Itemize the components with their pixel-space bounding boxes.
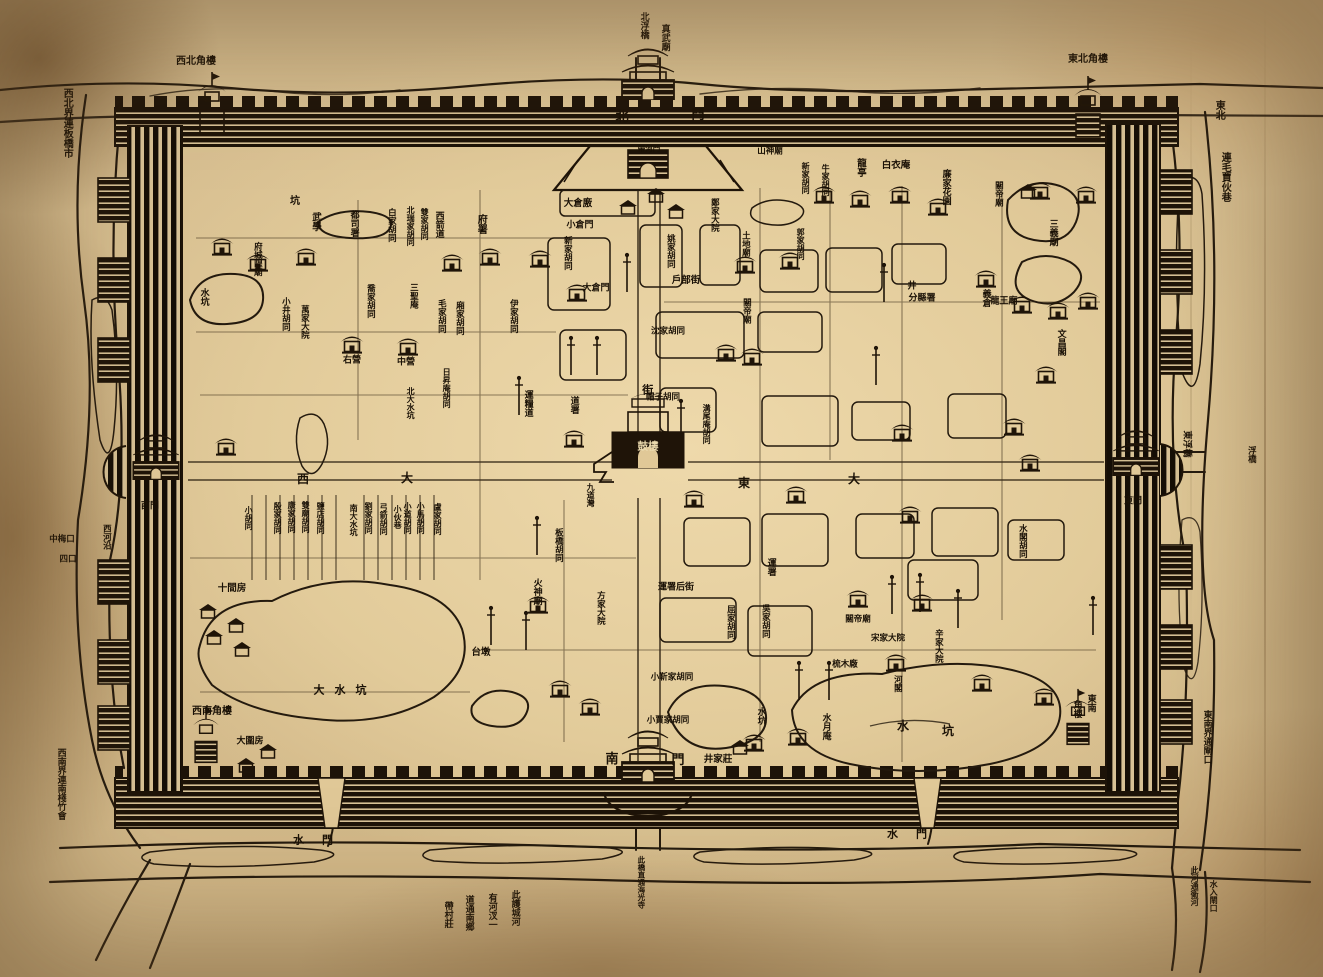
map-label: 大	[848, 473, 860, 485]
map-label: 浮橋	[1247, 446, 1256, 463]
map-label: 雙家胡同	[420, 208, 428, 240]
map-label: 鹽店胡同	[316, 502, 324, 534]
map-label: 新家胡同	[563, 236, 572, 270]
map-label: 喬家胡同	[366, 284, 375, 318]
map-label: 萬家大院	[300, 305, 309, 339]
map-label: 白衣庵	[882, 161, 911, 171]
map-label: 西南界連南棧竹會	[55, 748, 64, 820]
map-label: 關帝廟	[845, 616, 871, 625]
map-label: 大倉廒	[564, 199, 593, 209]
map-label: 帶河門	[638, 145, 661, 153]
map-label: 弓箭胡同	[379, 503, 387, 535]
map-label: 府城隍廟	[253, 242, 262, 276]
map-label: 文昌閣	[1055, 329, 1064, 356]
map-label: 大圍房	[236, 737, 263, 746]
map-label: 小胡同	[244, 506, 252, 530]
map-canvas: 真武廟北浮橋西北角樓東北角樓西南角樓東南角樓西北界連板橋市東北連毛賈伙巷西南界連…	[0, 0, 1323, 977]
map-label: 井家莊	[704, 755, 733, 765]
map-label: 角樓	[1071, 700, 1080, 718]
map-label: 康家胡同	[287, 501, 295, 533]
map-label: 水入閘口	[1209, 880, 1217, 912]
map-label: 小倉門	[566, 221, 593, 230]
map-label: 連毛賈伙巷	[1219, 152, 1229, 202]
map-label: 板橋胡同	[554, 528, 563, 562]
map-label: 宋家大院	[871, 635, 905, 644]
map-label: 大	[401, 472, 413, 484]
south-gate-label: 南	[605, 753, 618, 767]
map-label: 東浮橋	[1181, 430, 1190, 457]
map-label: 姚家胡同	[666, 234, 675, 268]
map-label: 道署	[568, 396, 577, 414]
map-label: 北瑞家胡同	[406, 206, 414, 246]
map-label: 白家胡同	[387, 208, 396, 242]
map-label: 台墩	[471, 648, 490, 658]
map-label: 運糧道	[522, 390, 531, 417]
map-label: 此橋直通海光寺	[637, 856, 645, 909]
map-label: 溝尾庵胡同	[702, 404, 710, 444]
map-label: 府署	[475, 214, 485, 234]
map-label: 小道胡同	[403, 502, 411, 534]
map-label: 殷家胡同	[273, 502, 281, 534]
map-label: 坑	[942, 725, 954, 737]
map-label: 火神廟	[531, 578, 540, 605]
map-label: 三義廟	[1047, 219, 1056, 246]
map-label: 此河通衛河	[1190, 866, 1198, 906]
map-label: 小伙巷	[393, 505, 401, 529]
map-label: 水月庵	[820, 713, 829, 740]
map-label: 關帝廟	[742, 298, 751, 324]
map-label: 關帝廟	[994, 181, 1003, 207]
map-label: 武學	[310, 212, 320, 231]
map-label: 龍亭	[855, 158, 865, 177]
map-label: 十間房	[218, 584, 247, 594]
map-label: 門	[691, 109, 704, 123]
drum-tower-label: 鼓樓	[638, 442, 659, 453]
map-label: 牛家胡同	[821, 164, 829, 196]
map-label: 帽子胡同	[646, 394, 680, 403]
nw-corner-tower-label: 西北角樓	[176, 57, 216, 67]
map-label: 西北界連板橋市	[61, 88, 71, 158]
map-label: 四口	[59, 556, 76, 565]
map-label: 中營	[397, 358, 415, 367]
map-label: 小賈家胡同	[647, 717, 690, 726]
map-label: 帶村莊	[442, 901, 451, 928]
map-label: 東南界通閘口	[1201, 710, 1210, 764]
map-label: 此護城河	[509, 890, 518, 926]
map-label: 義倉	[980, 289, 989, 307]
map-label: 大倉門	[582, 284, 609, 293]
map-label: 中梅口	[49, 536, 75, 545]
map-label: 分縣署	[908, 294, 935, 303]
west-water-gate-label: 水門	[293, 834, 351, 845]
map-label: 廂家胡同	[455, 301, 464, 335]
map-label: 毛家胡同	[437, 299, 446, 333]
map-label: 屈家胡同	[726, 605, 735, 639]
map-label: 辛家大院	[934, 629, 943, 663]
map-label: 梳木廠	[832, 661, 858, 670]
map-label: 龍王廟	[990, 297, 1017, 306]
map-label: 井	[907, 282, 916, 291]
se-corner-tower-label: 東南	[1085, 694, 1094, 712]
map-label: 新家胡同	[801, 162, 809, 194]
map-label: 北大水坑	[406, 387, 414, 419]
map-label: 水坑	[198, 288, 207, 306]
map-label: 土地廟	[741, 231, 750, 257]
map-label: 小井胡同	[281, 297, 290, 331]
map-label: 東北	[1213, 100, 1223, 120]
map-label: 戶部街	[672, 276, 701, 286]
map-label: 山神廟	[757, 148, 783, 157]
map-label: 伊家胡同	[509, 299, 518, 333]
map-label: 西河沿	[102, 524, 111, 550]
map-label: 道通南鄉	[463, 895, 472, 931]
map-label: 三聖庵	[409, 283, 418, 309]
west-gate-label: 西門	[141, 502, 159, 511]
map-label: 都司署	[348, 210, 357, 237]
map-label: 盧家胡同	[433, 503, 441, 535]
map-label: 雙廟胡同	[301, 501, 309, 533]
map-label: 真武廟	[659, 24, 668, 51]
map-label: 河閣	[893, 675, 902, 692]
east-water-gate-label: 水門	[887, 828, 945, 839]
map-label: 坑	[290, 197, 300, 207]
map-label: 水坑	[755, 707, 764, 725]
map-label: 門	[671, 754, 684, 768]
map-label: 小靳家胡同	[651, 674, 694, 683]
map-label: 南大水坑	[349, 504, 357, 536]
map-label: 沈家胡同	[651, 328, 685, 337]
map-label: 水	[897, 720, 909, 732]
map-label: 方家大院	[596, 591, 605, 625]
map-label: 小馬胡同	[416, 502, 424, 534]
map-label: 右營	[343, 356, 361, 365]
map-label: 西箭道	[433, 211, 442, 238]
map-label: 有河汊一	[486, 893, 495, 929]
map-label: 東	[738, 477, 750, 489]
map-label: 郭家胡同	[796, 228, 804, 260]
map-label: 大水坑	[314, 684, 377, 695]
map-label: 廉家花園	[940, 169, 949, 205]
east-gate-label: 東門	[1124, 497, 1142, 506]
north-gate-label: 北	[615, 111, 628, 125]
ne-corner-tower-label: 東北角樓	[1068, 55, 1108, 65]
map-label: 鄭家大院	[710, 198, 719, 232]
map-label: 西	[297, 473, 309, 485]
map-label: 吳家胡同	[761, 604, 770, 638]
map-label: 水閣胡同	[1018, 524, 1027, 558]
map-label: 劉家胡同	[364, 502, 372, 534]
label-layer: 真武廟北浮橋西北角樓東北角樓西南角樓東南角樓西北界連板橋市東北連毛賈伙巷西南界連…	[0, 0, 1323, 977]
map-label: 日昇庵胡同	[442, 368, 450, 408]
map-label: 運署后街	[658, 583, 694, 592]
north-pontoon-bridge-label: 北浮橋	[638, 12, 647, 39]
map-label: 運署	[765, 558, 774, 576]
map-label: 九道灣	[586, 483, 594, 507]
sw-corner-tower-label: 西南角樓	[192, 707, 232, 717]
